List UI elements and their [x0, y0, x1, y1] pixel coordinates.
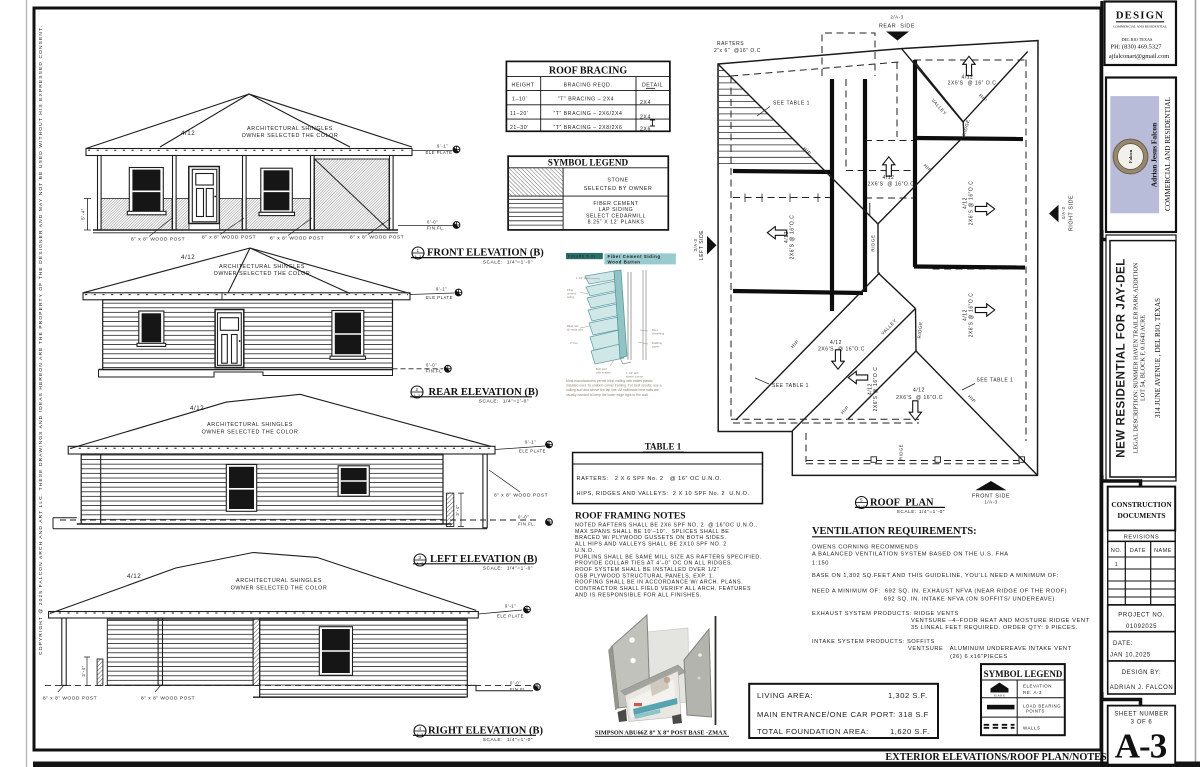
svg-text:3’-4”: 3’-4” — [81, 665, 86, 676]
svg-text:paper: paper — [652, 344, 659, 348]
svg-text:OWNER SELECTED THE COLOR: OWNER SELECTED THE COLOR — [231, 586, 328, 592]
svg-text:COPYRIGHT @ 2025 FALCON ARCH A: COPYRIGHT @ 2025 FALCON ARCH AND ART LLC… — [38, 25, 44, 655]
svg-text:nailing surf and above the lap: nailing surf and above the lap line. All… — [566, 388, 659, 392]
svg-text:0’-0”: 0’-0” — [510, 681, 521, 686]
svg-text:FIN.FL.: FIN.FL. — [427, 225, 445, 230]
svg-text:2X6: 2X6 — [640, 127, 651, 133]
svg-text:2X4: 2X4 — [640, 100, 651, 106]
svg-text:DOCUMENTS: DOCUMENTS — [1117, 511, 1165, 520]
svg-text:1,302 S.F.: 1,302 S.F. — [888, 691, 928, 700]
svg-text:FIGURE 5-31: FIGURE 5-31 — [568, 255, 596, 259]
svg-text:RIGHT SIDE: RIGHT SIDE — [1069, 195, 1075, 231]
svg-text:2X6'S @ 16”O.C: 2X6'S @ 16”O.C — [896, 395, 943, 401]
svg-text:8” x 8” WOOD POST: 8” x 8” WOOD POST — [494, 493, 548, 499]
svg-text:SELECT CEDARMILL: SELECT CEDARMILL — [586, 213, 646, 219]
svg-text:MAX SPANS SHALL BE 10’–10”. S: MAX SPANS SHALL BE 10’–10”. SPLICES SHAL… — [575, 529, 729, 535]
svg-text:4/12: 4/12 — [830, 340, 842, 346]
svg-text:HIPS, RIDGES AND VALLEYS: 2 X: HIPS, RIDGES AND VALLEYS: 2 X 10 SPF No.… — [577, 491, 750, 497]
svg-text:LEFT SIDE: LEFT SIDE — [699, 230, 705, 260]
svg-text:Most manufacturers permit blin: Most manufacturers permit blind nailing … — [566, 379, 653, 383]
svg-text:REVISIONS: REVISIONS — [1124, 535, 1159, 541]
svg-text:LEGAL DESCRIPTION: SUMMER HAVE: LEGAL DESCRIPTION: SUMMER HAVEN TRAILER … — [1133, 262, 1140, 453]
svg-text:installed over. To uniform com: installed over. To uniform comer framing… — [566, 384, 662, 388]
svg-text:RAFTERS: 2 X 6 SPF No. 2 @: RAFTERS: 2 X 6 SPF No. 2 @ 16” OC U.N.O. — [577, 476, 723, 482]
svg-text:Adrian Jesus Falcon: Adrian Jesus Falcon — [1150, 123, 1159, 187]
svg-text:SHEET NUMBER: SHEET NUMBER — [1114, 712, 1168, 718]
svg-text:2/A-3: 2/A-3 — [890, 15, 903, 20]
svg-text:ARCHITECTURAL SHINGLES: ARCHITECTURAL SHINGLES — [207, 422, 293, 428]
svg-text:4/12: 4/12 — [127, 573, 141, 580]
svg-text:SYMBOL LEGEND: SYMBOL LEGEND — [548, 157, 629, 167]
svg-text:8” x 8” WOOD POST: 8” x 8” WOOD POST — [43, 696, 97, 702]
svg-text:ELE PLATE: ELE PLATE — [426, 150, 453, 155]
svg-text:3/A-3: 3/A-3 — [693, 239, 698, 252]
svg-text:SCALE: 1/4”=1’-0”: SCALE: 1/4”=1’-0” — [897, 509, 945, 515]
svg-text:X/AKX: X/AKX — [994, 693, 1006, 697]
svg-text:ELE PLATE: ELE PLATE — [519, 449, 546, 454]
svg-text:PROVIDE COLLAR TIES AT 4’–0” O: PROVIDE COLLAR TIES AT 4’–0” OC ON ALL R… — [575, 561, 733, 567]
svg-text:REAR SIDE: REAR SIDE — [879, 24, 915, 30]
svg-text:”T” BRACING – 2X6/2X4: ”T” BRACING – 2X6/2X4 — [554, 111, 623, 117]
svg-text:0’-0”: 0’-0” — [427, 220, 438, 225]
svg-text:OWNER SELECTED THE COLOR: OWNER SELECTED THE COLOR — [202, 430, 299, 436]
svg-text:FIN.FL: FIN.FL — [426, 369, 442, 374]
svg-text:ARCHITECTURAL SHINGLES: ARCHITECTURAL SHINGLES — [219, 264, 305, 270]
svg-text:ROOF BRACING: ROOF BRACING — [549, 66, 627, 77]
svg-text:FIN.FL.: FIN.FL. — [510, 687, 528, 692]
svg-text:RIGHT ELEVATION (B): RIGHT ELEVATION (B) — [428, 725, 543, 736]
svg-text:8.25” X 12’ PLANKS: 8.25” X 12’ PLANKS — [588, 220, 645, 226]
svg-text:FIBER CEMENT: FIBER CEMENT — [593, 201, 639, 207]
svg-text:COMMERCIAL AND RESIDENTIAL: COMMERCIAL AND RESIDENTIAL — [1164, 97, 1172, 211]
svg-text:3: 3 — [418, 555, 421, 560]
svg-text:Falcon: Falcon — [1128, 149, 1133, 163]
svg-text:9’-1”: 9’-1” — [525, 440, 536, 445]
svg-text:8” x 8” WOOD POST: 8” x 8” WOOD POST — [131, 237, 185, 243]
svg-text:NOTED RAFTERS SHALL BE 2X6 SPF: NOTED RAFTERS SHALL BE 2X6 SPF NO. 2 @ 1… — [575, 523, 758, 529]
svg-text:PH: (830) 469.5327: PH: (830) 469.5327 — [1111, 44, 1163, 51]
svg-text:NEED A MINIMUM OF: 692 SQ. IN: NEED A MINIMUM OF: 692 SQ. IN. EXHAUST N… — [812, 589, 1067, 595]
svg-text:4/12: 4/12 — [913, 388, 925, 394]
svg-text:A BALANCED VENTILATION SYSTEM: A BALANCED VENTILATION SYSTEM BASED ON T… — [812, 552, 1009, 558]
svg-text:NEW RESIDENTIAL FOR JAY-DEL: NEW RESIDENTIAL FOR JAY-DEL — [1116, 258, 1128, 458]
svg-text:ajfalconart@gmail.com: ajfalconart@gmail.com — [1109, 53, 1169, 60]
svg-text:CONSTRUCTION: CONSTRUCTION — [1111, 500, 1172, 509]
svg-text:2X6'S @ 16”O.C: 2X6'S @ 16”O.C — [873, 367, 879, 412]
svg-text:ELE PLATE: ELE PLATE — [426, 295, 453, 300]
svg-text:EXHAUST SYSTEM PRODUCTS: RIDGE: EXHAUST SYSTEM PRODUCTS: RIDGE VENTS — [812, 611, 959, 617]
svg-text:SYMBOL LEGEND: SYMBOL LEGEND — [984, 669, 1063, 679]
svg-text:ARCHITECTURAL SHINGLES: ARCHITECTURAL SHINGLES — [247, 126, 333, 132]
svg-text:2X6'S @ 16”O.C: 2X6'S @ 16”O.C — [868, 182, 915, 188]
svg-text:9’-1”: 9’-1” — [505, 604, 516, 609]
svg-text:VENTSURE –4–FOOR HEAT AND MOST: VENTSURE –4–FOOR HEAT AND MOSTURE RIDGE … — [911, 618, 1090, 624]
svg-text:CONTRACTOR SHALL FIELD VERIFY: CONTRACTOR SHALL FIELD VERIFY ALL ARCH. … — [575, 586, 751, 592]
svg-text:NO.: NO. — [1111, 548, 1122, 554]
svg-text:U.N.O.: U.N.O. — [575, 548, 595, 554]
svg-text:0’-0”: 0’-0” — [426, 363, 437, 368]
svg-text:1,620 S.F.: 1,620 S.F. — [890, 727, 930, 736]
svg-text:3’-4”: 3’-4” — [455, 504, 460, 515]
svg-text:HEIGHT: HEIGHT — [512, 82, 535, 88]
svg-text:VENTSURE ALUMINUM UNDEREAVE: VENTSURE ALUMINUM UNDEREAVE INTAKE VENT — [908, 646, 1072, 652]
svg-text:2X6'S @ 16” O.C: 2X6'S @ 16” O.C — [948, 81, 997, 87]
svg-text:NAME: NAME — [1154, 548, 1172, 554]
svg-text:usually needed to keep the low: usually needed to keep the lower edge ti… — [566, 393, 649, 397]
svg-text:JAN 10,2025: JAN 10,2025 — [1110, 653, 1151, 659]
svg-text:SIMPSON ABU66Z 8” X 8” POST B: SIMPSON ABU66Z 8” X 8” POST BASE -ZMAX — [595, 730, 728, 737]
svg-text:BASE ON 1,302 SQ.FEET AND THIS: BASE ON 1,302 SQ.FEET AND THIS GUIDELINE… — [812, 573, 1059, 579]
svg-text:with sealant: with sealant — [596, 370, 611, 374]
svg-text:PROJECT NO.: PROJECT NO. — [1118, 613, 1164, 619]
svg-text:8” x 8” WOOD POST: 8” x 8” WOOD POST — [350, 235, 404, 241]
svg-text:4: 4 — [418, 726, 421, 731]
svg-text:SELECTED BY OWNER: SELECTED BY OWNER — [584, 186, 653, 192]
svg-text:SEE TABLE 1: SEE TABLE 1 — [977, 378, 1014, 384]
svg-text:2” min: 2” min — [570, 341, 578, 345]
svg-text:FIN.FL.: FIN.FL. — [518, 522, 536, 527]
svg-text:PURLINS SHALL BE SAME MILL SIZ: PURLINS SHALL BE SAME MILL SIZE AS RAFTE… — [575, 554, 762, 560]
svg-text:TABLE 1: TABLE 1 — [645, 442, 682, 452]
svg-text:DATE: DATE — [1130, 548, 1146, 554]
svg-text:BRACING REQD.: BRACING REQD. — [564, 82, 613, 88]
svg-text:VENTILATION REQUIREMENTS:: VENTILATION REQUIREMENTS: — [812, 526, 977, 537]
svg-text:01092025: 01092025 — [1126, 624, 1157, 630]
svg-text:AND IS RESPONSIBLE FOR ALL FIN: AND IS RESPONSIBLE FOR ALL FINISHES. — [575, 592, 702, 598]
svg-text:SCALE: 1/4”=1’-0”: SCALE: 1/4”=1’-0” — [483, 737, 533, 743]
svg-text:5: 5 — [860, 497, 863, 502]
svg-text:RIDGE: RIDGE — [871, 234, 876, 251]
svg-text:ROOF SYSTEM SHALL BE INSTALLED: ROOF SYSTEM SHALL BE INSTALLED OVER 1/2” — [575, 567, 719, 573]
svg-text:9’-1”: 9’-1” — [436, 287, 447, 292]
svg-text:SCALE: 1/4”=1’-0”: SCALE: 1/4”=1’-0” — [483, 566, 533, 572]
svg-text:WALLS: WALLS — [1023, 726, 1040, 731]
svg-text:siding: siding — [567, 295, 575, 299]
svg-text:LOT 54, BLOCK F, 0.1643 ACRE: LOT 54, BLOCK F, 0.1643 ACRE — [1140, 315, 1147, 401]
svg-text:2X6'S @ 16”O.C: 2X6'S @ 16”O.C — [790, 215, 796, 260]
svg-text:8” x 8” WOOD POST: 8” x 8” WOOD POST — [270, 236, 324, 242]
svg-text:21–30’: 21–30’ — [510, 125, 529, 131]
svg-text:OWNER SELECTED THE COLOR: OWNER SELECTED THE COLOR — [242, 133, 339, 139]
svg-text:ELEVATION: ELEVATION — [1023, 684, 1052, 689]
svg-text:DETAIL: DETAIL — [642, 82, 663, 88]
svg-text:BRACED W/ PLYWOOD GUSSETS ON B: BRACED W/ PLYWOOD GUSSETS ON BOTH SIDES. — [575, 535, 726, 541]
svg-text:1: 1 — [1115, 562, 1119, 568]
svg-text:SEE TABLE 1: SEE TABLE 1 — [773, 101, 810, 107]
svg-text:4/12: 4/12 — [190, 405, 204, 412]
svg-text:1:150: 1:150 — [812, 561, 829, 567]
svg-text:4/A-3: 4/A-3 — [1061, 207, 1066, 220]
svg-text:1/A-3: 1/A-3 — [984, 500, 997, 505]
svg-text:DEL RIO TEXAS: DEL RIO TEXAS — [1122, 37, 1153, 42]
svg-text:1: 1 — [416, 248, 419, 253]
svg-text:FRONT ELEVATION (B): FRONT ELEVATION (B) — [427, 248, 544, 259]
svg-text:2X6'S @ 16”O.C: 2X6'S @ 16”O.C — [818, 347, 865, 353]
svg-text:EXTERIOR ELEVATIONS/ROOF PLAN/: EXTERIOR ELEVATIONS/ROOF PLAN/NOTES — [885, 752, 1106, 763]
svg-text:”T” BRACING – 2X8/2X6: ”T” BRACING – 2X8/2X6 — [554, 125, 623, 131]
svg-text:DESIGN BY:: DESIGN BY: — [1122, 670, 1162, 676]
svg-text:STONE: STONE — [607, 178, 628, 184]
svg-text:”T” BRACING – 2X4: ”T” BRACING – 2X4 — [558, 97, 614, 103]
svg-text:ADRIAN J. FALCON: ADRIAN J. FALCON — [1110, 685, 1173, 691]
svg-text:REAR ELEVATION (B): REAR ELEVATION (B) — [429, 387, 539, 398]
svg-text:8” x 8” WOOD POST: 8” x 8” WOOD POST — [202, 235, 256, 241]
svg-text:DATE:: DATE: — [1113, 641, 1133, 647]
svg-text:8” x 8” WOOD POST: 8” x 8” WOOD POST — [141, 696, 195, 702]
svg-text:ELE PLATE: ELE PLATE — [497, 614, 524, 619]
svg-text:(26) 6 x16”PIECES: (26) 6 x16”PIECES — [950, 654, 1008, 660]
svg-text:ROOF FRAMING NOTES: ROOF FRAMING NOTES — [575, 512, 685, 522]
svg-text:LIVING AREA:: LIVING AREA: — [757, 691, 813, 700]
svg-text:35 LINEAL FEET REQUIRED. ORDER: 35 LINEAL FEET REQUIRED. ORDER QTY: 9 PI… — [911, 625, 1078, 631]
svg-text:DESIGN: DESIGN — [1116, 10, 1165, 22]
svg-text:9’-1”: 9’-1” — [437, 144, 448, 149]
svg-text:SCALE: 1/4”=1’-0”: SCALE: 1/4”=1’-0” — [479, 399, 529, 405]
svg-text:2X6'S @ 16”O.C: 2X6'S @ 16”O.C — [969, 181, 975, 226]
svg-text:4/12: 4/12 — [181, 130, 195, 137]
svg-text:SCALE: 1/4”=1’-0”: SCALE: 1/4”=1’-0” — [483, 259, 533, 265]
svg-text:OSB PLYWOOD STRUCTURAL PANELS,: OSB PLYWOOD STRUCTURAL PANELS, EXP. 1. — [575, 573, 714, 579]
svg-text:RAFTERS: RAFTERS — [717, 41, 744, 47]
svg-text:LEFT ELEVATION (B): LEFT ELEVATION (B) — [430, 554, 538, 565]
svg-text:INTAKE SYSTEM PRODUCTS: SOFFIT: INTAKE SYSTEM PRODUCTS: SOFFITS — [812, 639, 935, 645]
svg-text:11–20’: 11–20’ — [510, 111, 529, 117]
svg-text:Wood Batten: Wood Batten — [608, 259, 641, 264]
svg-text:4/12: 4/12 — [883, 175, 895, 181]
svg-text:2: 2 — [415, 387, 418, 392]
svg-text:5’-4”: 5’-4” — [81, 208, 86, 220]
svg-text:ALL HIPS AND VALLEYS SHALL BE: ALL HIPS AND VALLEYS SHALL BE 2X10 SPF N… — [575, 542, 727, 548]
svg-text:TOTAL FOUNDATION AREA:: TOTAL FOUNDATION AREA: — [757, 727, 869, 736]
svg-text:ROOFING SHALL BE IN ACCORDANCE: ROOFING SHALL BE IN ACCORDANCE W/ ARCH. … — [575, 580, 743, 586]
svg-text:A-3: A-3 — [1115, 727, 1167, 766]
svg-text:0’-0”: 0’-0” — [518, 515, 529, 520]
svg-text:RE: A-3: RE: A-3 — [1023, 690, 1042, 695]
svg-text:2X6'S @ 16”O.C: 2X6'S @ 16”O.C — [969, 293, 975, 338]
svg-text:POINTS: POINTS — [1026, 709, 1045, 714]
svg-text:1–10’: 1–10’ — [512, 97, 527, 103]
svg-text:OWENS CORNING RECOMMENDS: OWENS CORNING RECOMMENDS — [812, 545, 918, 551]
svg-text:ARCHITECTURAL SHINGLES: ARCHITECTURAL SHINGLES — [236, 578, 322, 584]
svg-text:RIDGE: RIDGE — [899, 444, 904, 460]
svg-text:692 SQ. IN. INTAKE NFVA (ON SO: 692 SQ. IN. INTAKE NFVA (ON SOFFITS/ UND… — [884, 597, 1055, 603]
svg-text:4/12: 4/12 — [181, 254, 195, 261]
svg-text:314 JUNE AVENUE , DEL RIO, TEX: 314 JUNE AVENUE , DEL RIO, TEXAS — [1154, 298, 1162, 418]
svg-text:SEE TABLE 1: SEE TABLE 1 — [772, 383, 809, 389]
svg-text:sheathing: sheathing — [652, 331, 665, 335]
svg-text:2X4: 2X4 — [640, 115, 651, 121]
svg-text:LAP SIDING: LAP SIDING — [599, 207, 634, 213]
svg-text:2”x 6” @16” O.C: 2”x 6” @16” O.C — [714, 48, 761, 54]
svg-text:COMMERCIAL AND RESIDENTIAL: COMMERCIAL AND RESIDENTIAL — [1113, 25, 1167, 29]
svg-text:@ studs only: @ studs only — [567, 327, 584, 331]
svg-text:3 OF 6: 3 OF 6 — [1131, 720, 1153, 726]
svg-text:OWNER SELECTED THE COLOR: OWNER SELECTED THE COLOR — [214, 271, 311, 277]
svg-text:starter course: starter course — [626, 374, 644, 378]
svg-text:MAIN ENTRANCE/ONE CAR PORT: 31: MAIN ENTRANCE/ONE CAR PORT: 318 S.F — [757, 710, 929, 719]
